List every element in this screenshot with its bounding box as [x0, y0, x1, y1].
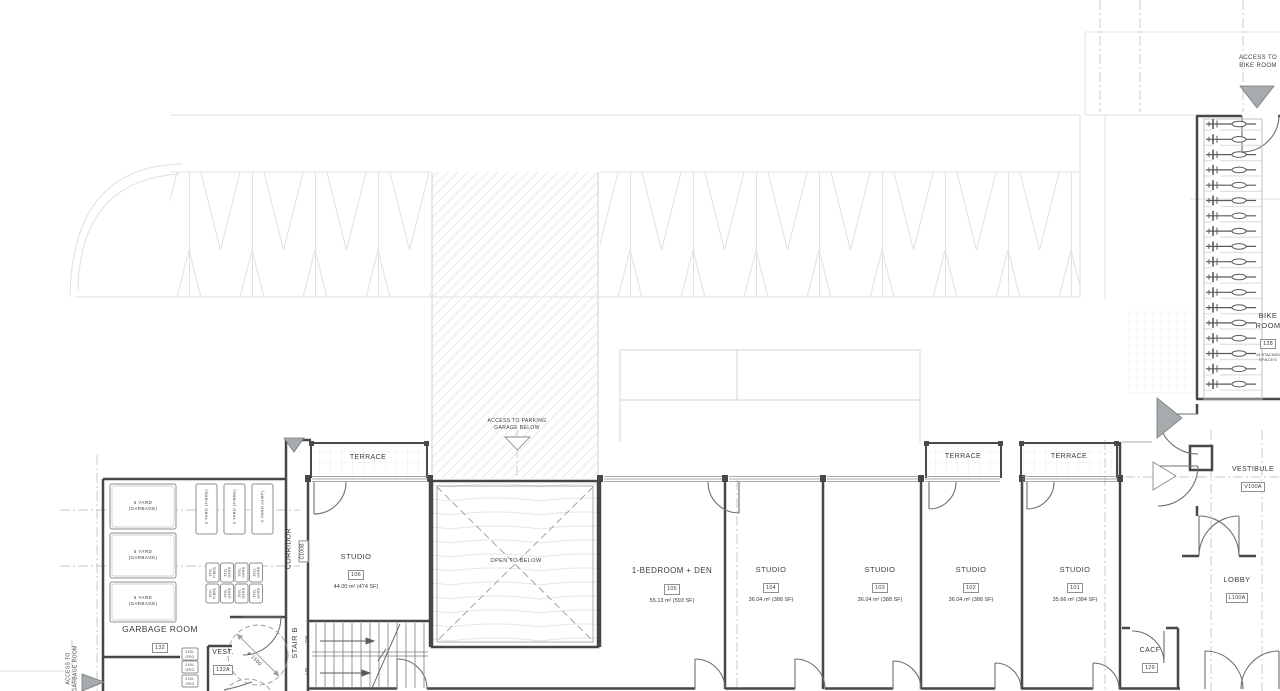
hatch-patch [1128, 308, 1196, 394]
bin-3yard-3-label: 3 YARD (GMP) [259, 482, 264, 532]
room-label-vest: VEST. 132A [200, 648, 246, 678]
terrace-3-label: TERRACE [1019, 452, 1119, 461]
stair-dn-label: DN [304, 629, 310, 649]
room-label-studio-103: STUDIO 103 36.04 m² (388 SF) [830, 565, 930, 604]
bin-360l-label: 360LGARB [252, 563, 260, 582]
bin-360l-label: 360LGARB [252, 584, 260, 603]
access-bike-room-note: ACCESS TO BIKE ROOM [1218, 55, 1280, 71]
bin-240l-label: 240LORG [182, 650, 198, 659]
bin-360l-label: 360LGARB [237, 563, 245, 582]
room-label-stair-b: STAIR B [290, 608, 300, 678]
bin-240l-label: 240LORG [182, 663, 198, 672]
entry-arrow-filled [1157, 398, 1182, 438]
access-parking-note: ACCESS TO PARKING GARAGE BELOW [467, 418, 567, 431]
room-label-lobby: LOBBY L100A [1187, 575, 1280, 606]
corridor-tag: C100B [290, 529, 311, 573]
room-label-bike-room: BIKE ROOM 128 14 STACKED SPACES [1238, 311, 1280, 363]
open-to-below-label: OPEN TO BELOW [466, 558, 566, 565]
bin-6yard-3-label: 6 YARD (GARBAGE) [110, 595, 176, 607]
bike-access-arrow [1240, 86, 1274, 108]
bin-360l-label: 360LFIBRE [208, 563, 216, 582]
bin-6yard-1-label: 6 YARD (GARBAGE) [110, 500, 176, 512]
bin-360l-label: 360LFIBRE [208, 584, 216, 603]
bin-360l-label: 360LGARB [223, 584, 231, 603]
access-garbage-note: ACCESS TO GARBAGE ROOM [66, 634, 79, 691]
room-label-studio-106: STUDIO 106 44.00 m² (474 SF) [306, 552, 406, 591]
room-label-studio-101: STUDIO 101 35.66 m² (384 SF) [1025, 565, 1125, 604]
garbage-access-arrow [82, 674, 104, 691]
parking-ramp [432, 172, 598, 478]
room-label-vestibule: VESTIBULE V100A [1203, 465, 1280, 495]
floor-plan-canvas: ACCESS TO BIKE ROOM TERRACE TERRACE TERR… [0, 0, 1280, 691]
terrace-2-label: TERRACE [913, 452, 1013, 461]
room-label-cacf: CACF 129 [1110, 646, 1190, 676]
bin-240l-label: 240LORG [182, 677, 198, 686]
bin-3yard-2-label: 3 YARD (FIBRE) [231, 482, 236, 532]
stair-up-label: UP [304, 661, 310, 681]
room-label-studio-102: STUDIO 102 36.04 m² (388 SF) [921, 565, 1021, 604]
bin-360l-label: 360LGARB [237, 584, 245, 603]
bin-360l-label: 360LGARB [223, 563, 231, 582]
terrace-1-label: TERRACE [318, 453, 418, 462]
bin-6yard-2-label: 6 YARD (GARBAGE) [110, 549, 176, 561]
room-label-studio-104: STUDIO 104 36.04 m² (388 SF) [721, 565, 821, 604]
bin-3yard-1-label: 3 YARD (FIBRE) [203, 482, 208, 532]
room-label-1bed-105: 1-BEDROOM + DEN 105 55.13 m² (593 SF) [612, 566, 732, 605]
stair-b-stairs [312, 623, 428, 688]
